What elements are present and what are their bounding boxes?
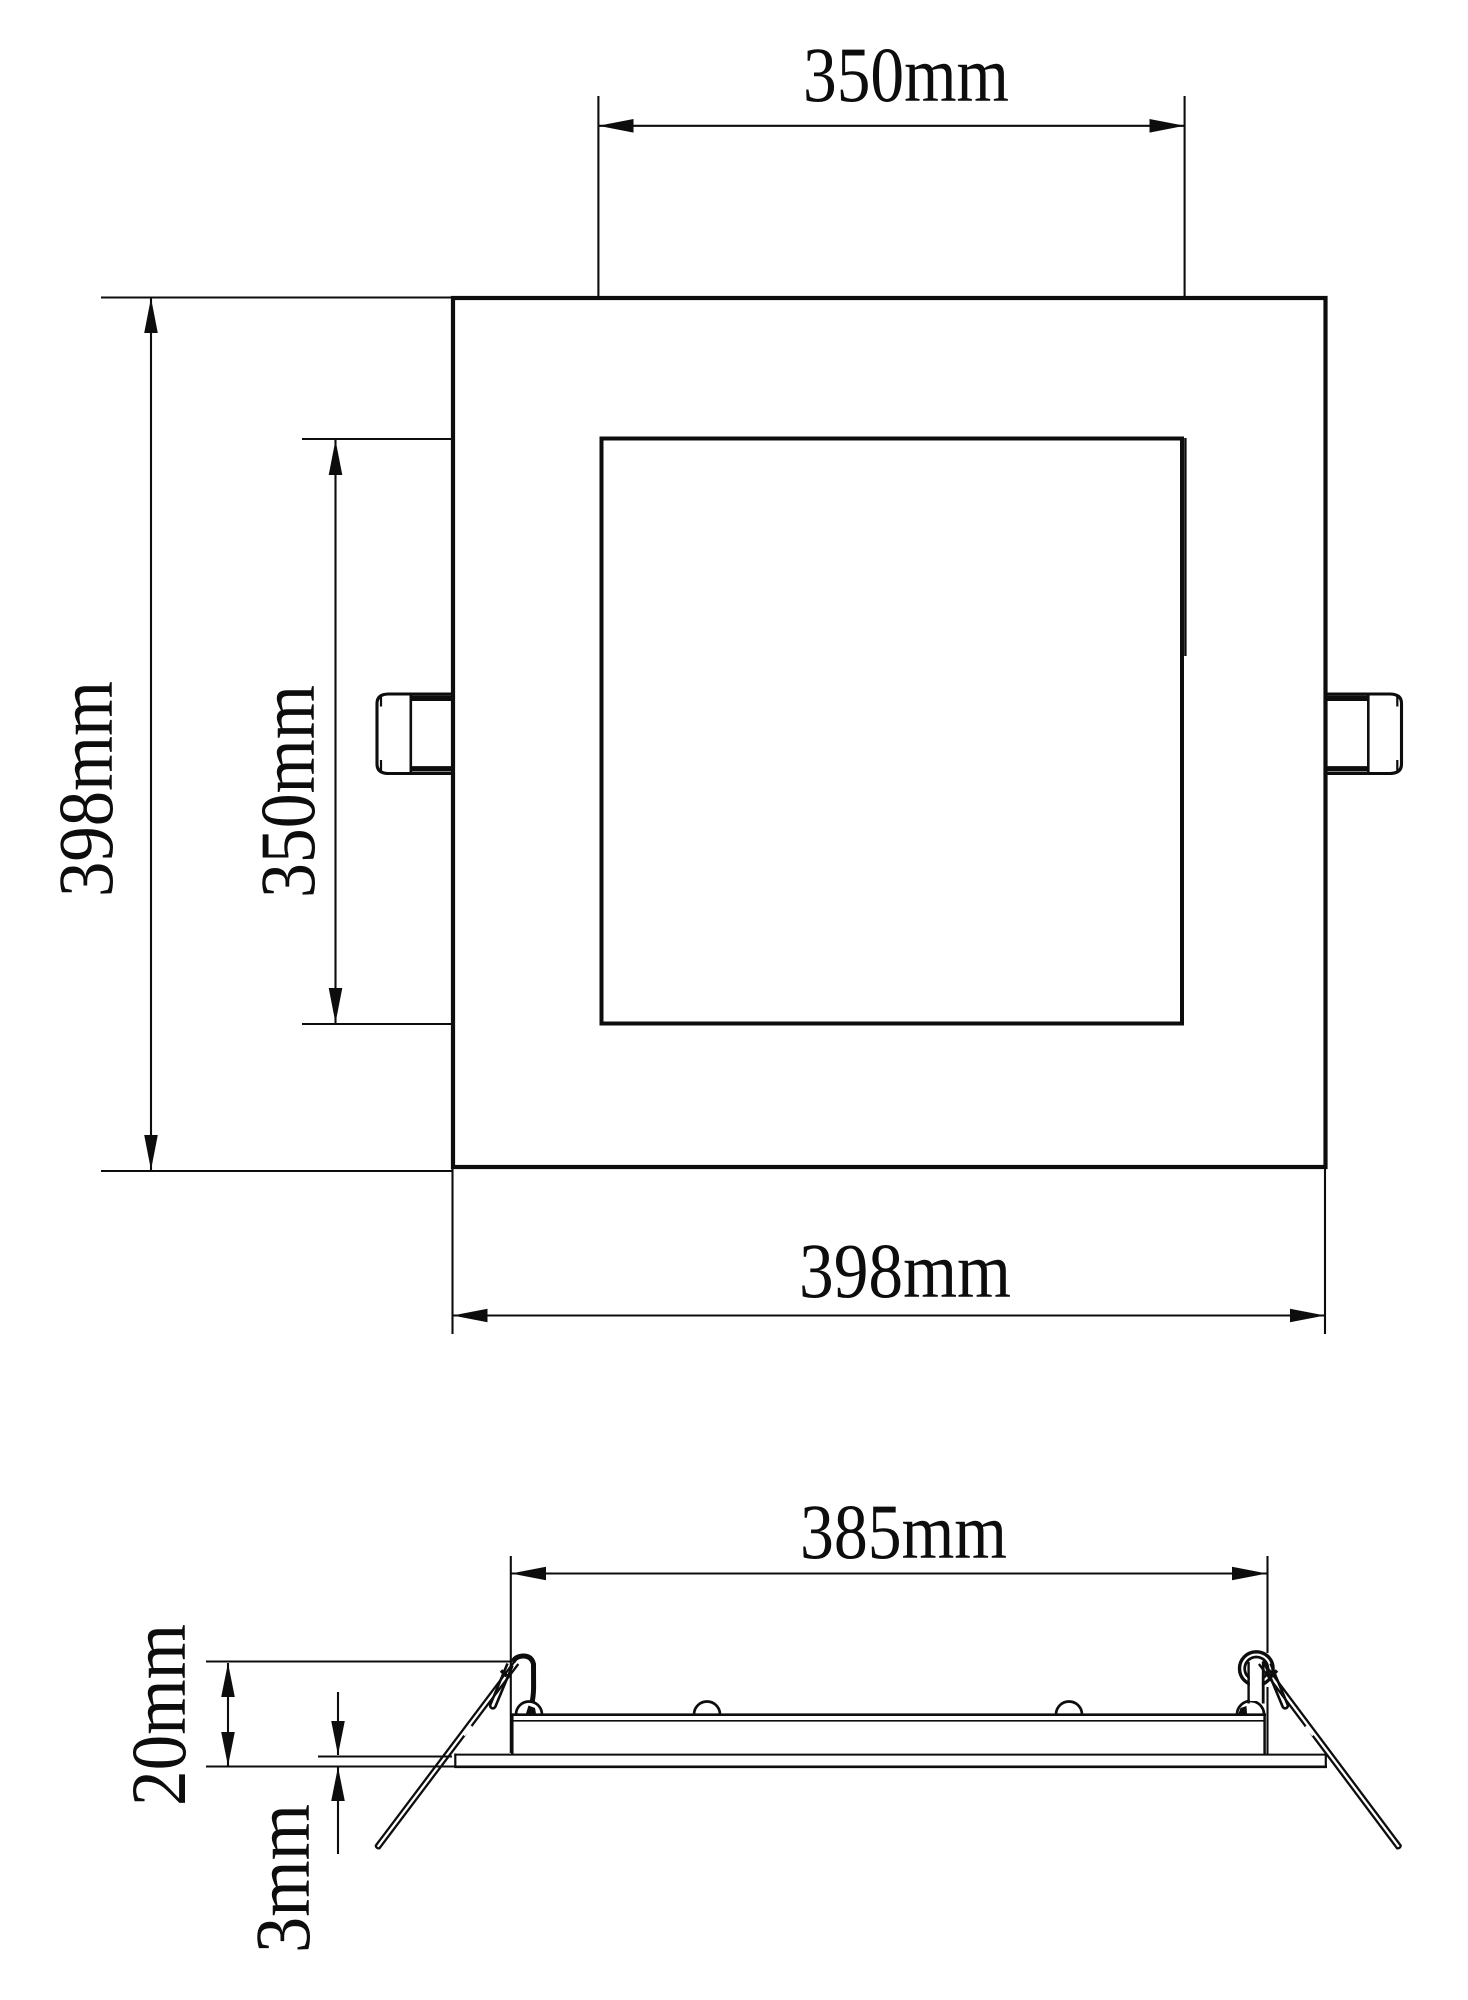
svg-text:3mm: 3mm bbox=[239, 1804, 326, 1953]
svg-text:385mm: 385mm bbox=[800, 1488, 1007, 1575]
svg-text:398mm: 398mm bbox=[42, 681, 129, 897]
svg-text:350mm: 350mm bbox=[803, 31, 1009, 118]
svg-text:20mm: 20mm bbox=[115, 1624, 202, 1806]
svg-text:350mm: 350mm bbox=[244, 685, 331, 898]
svg-text:398mm: 398mm bbox=[799, 1227, 1011, 1314]
